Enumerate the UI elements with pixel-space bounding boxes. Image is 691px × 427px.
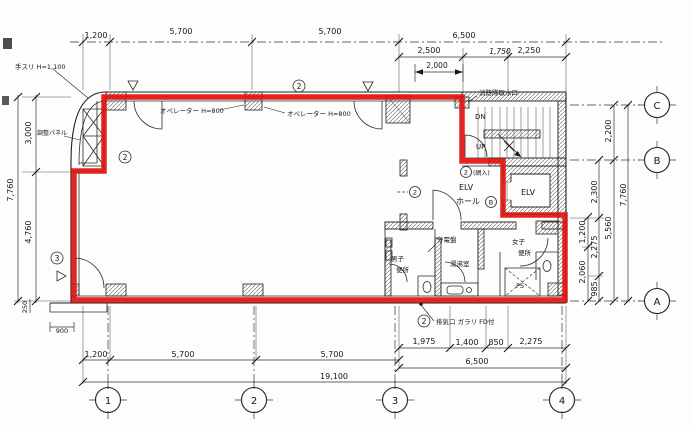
pipe-shaft-label: PS <box>516 282 524 290</box>
toilet-fixture <box>543 261 551 272</box>
dim-bottom-5700a: 5,700 <box>172 350 195 359</box>
dim-left-3000: 3,000 <box>24 122 33 145</box>
scan-artifact <box>2 96 9 105</box>
cabinet <box>536 221 558 234</box>
mens-room-label-2: 便所 <box>396 265 410 274</box>
dim-top-5700b: 5,700 <box>319 27 342 36</box>
dim-right-7760: 7,760 <box>619 184 628 207</box>
panel-label: 調整パネル <box>37 129 67 137</box>
dim-bottom-1400: 1,400 <box>456 338 479 347</box>
dim-right-985: 985 <box>590 281 599 296</box>
stair-landing-band <box>484 130 540 138</box>
dim-step-250: 250 <box>21 301 29 313</box>
dimensions-right: 1,200 2,060 2,300 2,275 985 2,200 5,560 … <box>570 101 632 305</box>
floor-plan-canvas: DN UP ELV ELV ホール B 2 (網入) 2 <box>0 0 691 427</box>
stairwell: DN UP <box>462 107 566 166</box>
dim-right-2275: 2,275 <box>590 236 599 259</box>
elv-hall-label-1: ELV <box>459 183 474 192</box>
dim-right-2300: 2,300 <box>590 181 599 204</box>
triangle-marker-icon <box>57 271 66 281</box>
dim-bottom-5700b: 5,700 <box>321 350 344 359</box>
stair-arrow <box>514 151 521 157</box>
grid-col-3: 3 <box>376 382 414 419</box>
top-wall-door-arc <box>354 101 382 129</box>
svg-text:A: A <box>654 297 661 308</box>
svg-text:2: 2 <box>464 169 468 177</box>
svg-text:2: 2 <box>251 396 257 407</box>
triangle-marker-icon <box>128 81 138 90</box>
svg-text:1: 1 <box>105 396 111 407</box>
dim-door-2000: 2,000 <box>426 61 448 70</box>
scan-artifact <box>3 38 12 49</box>
dim-left-7760: 7,760 <box>6 179 15 202</box>
grid-row-a: A <box>638 282 676 320</box>
svg-text:3: 3 <box>55 254 60 263</box>
dim-top-6500: 6,500 <box>453 31 476 40</box>
dim-bottom-2275: 2,275 <box>520 337 543 346</box>
triangle-marker-icon <box>363 82 373 91</box>
elv-hall-label-2: ホール <box>456 197 480 206</box>
dim-step-900: 900 <box>56 327 68 335</box>
distribution-board-label: 分電盤 <box>437 235 457 244</box>
floor-plan-drawing: DN UP ELV ELV ホール B 2 (網入) 2 <box>0 0 691 427</box>
svg-text:4: 4 <box>559 396 565 407</box>
dim-bottom-6500: 6,500 <box>466 357 489 366</box>
womens-room-label-1: 女子 <box>512 237 526 246</box>
door-type-b: B <box>489 199 493 207</box>
grid-row-c: C <box>638 86 676 124</box>
dim-right-2060: 2,060 <box>578 261 587 284</box>
svg-text:3: 3 <box>392 396 398 407</box>
grid-col-1: 1 <box>89 382 127 419</box>
annotation-labels: 手スリ H=1,100 調整パネル オペレーター H=800 オペレーター H=… <box>15 62 518 326</box>
dimensions-bottom: 1,975 1,400 850 2,275 1,200 5,700 5,700 … <box>79 306 570 386</box>
dim-bottom-850: 850 <box>488 338 503 347</box>
elevator-block: ELV ELV ホール B 2 (網入) 2 <box>397 160 558 230</box>
svg-text:2: 2 <box>123 153 128 162</box>
dim-top-1200: 1,200 <box>85 31 108 40</box>
dim-bottom-1975: 1,975 <box>413 337 436 346</box>
dim-top-1750: 1,750 <box>489 47 511 56</box>
dim-left-4760: 4,760 <box>24 221 33 244</box>
mens-room-label-1: 男子 <box>391 255 405 263</box>
grid-col-4: 4 <box>543 382 581 419</box>
operator-right-label: オペレーター H=800 <box>287 109 351 118</box>
svg-text:B: B <box>654 156 661 167</box>
womens-room-label-2: 便所 <box>518 248 532 257</box>
svg-text:C: C <box>654 101 661 112</box>
grid-col-2: 2 <box>235 382 273 419</box>
stair-up-label: UP <box>476 143 485 151</box>
dim-bottom-1200: 1,200 <box>85 350 108 359</box>
grid-row-b: B <box>638 141 676 179</box>
handrail-label: 手スリ H=1,100 <box>15 62 66 71</box>
toilet-block: PS 男子 便所 湯沸室 女子 便所 分電盤 <box>385 221 566 296</box>
svg-text:2: 2 <box>413 189 417 197</box>
kitchenette-label: 湯沸室 <box>450 259 470 268</box>
stair-dn-label: DN <box>475 113 486 121</box>
dim-top-2500: 2,500 <box>418 46 441 55</box>
wired-glass-note: (網入) <box>473 169 490 177</box>
balcony-door-arc <box>134 101 162 129</box>
dim-top-2250: 2,250 <box>518 46 541 55</box>
elevator-label: ELV <box>521 188 536 197</box>
dim-right-2200: 2,200 <box>604 120 613 143</box>
dim-top-5700a: 5,700 <box>170 27 193 36</box>
dim-right-1200: 1,200 <box>578 221 587 244</box>
svg-text:2: 2 <box>422 317 427 326</box>
dim-bottom-19100: 19,100 <box>320 372 348 381</box>
svg-text:2: 2 <box>297 82 302 91</box>
left-door-arc <box>74 258 104 288</box>
operator-left-label: オペレーター H=800 <box>160 106 224 115</box>
fire-intake-label: 消防隊取水口 <box>479 88 518 97</box>
sink-fixture <box>447 286 463 294</box>
dim-right-5560: 5,560 <box>604 217 613 240</box>
toilet-fixture <box>423 282 431 293</box>
